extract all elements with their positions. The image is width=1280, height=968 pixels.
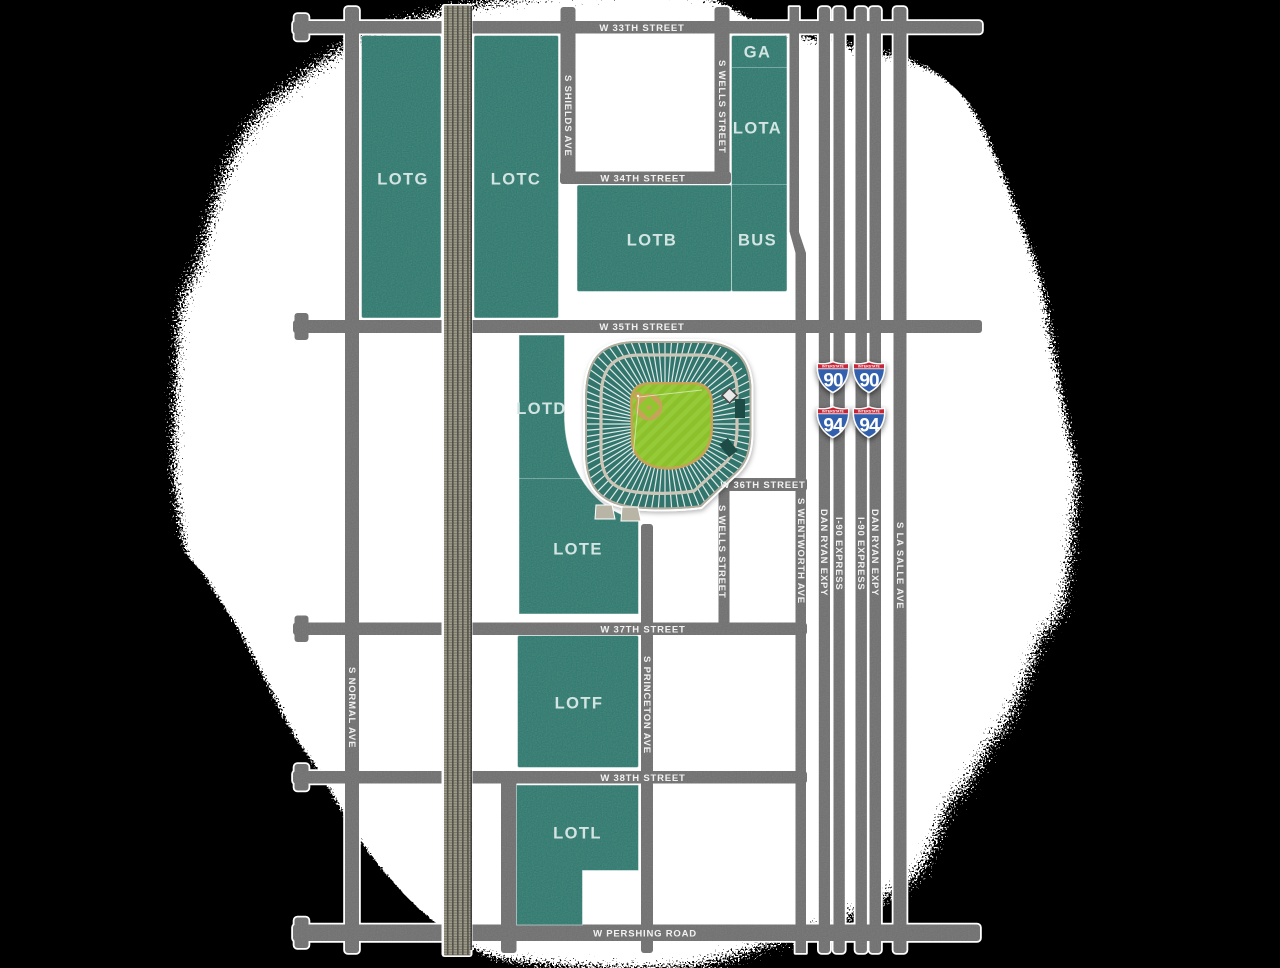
svg-text:LOTF: LOTF: [555, 694, 604, 712]
svg-text:W 33TH STREET: W 33TH STREET: [599, 23, 684, 34]
svg-text:LOTD: LOTD: [516, 400, 567, 418]
svg-text:S SHIELDS AVE: S SHIELDS AVE: [562, 75, 573, 157]
svg-text:S LA SALLE AVE: S LA SALLE AVE: [894, 522, 905, 609]
svg-text:90: 90: [823, 371, 843, 392]
svg-text:LOTE: LOTE: [553, 540, 603, 558]
svg-text:S NORMAL AVE: S NORMAL AVE: [346, 667, 357, 748]
svg-text:94: 94: [859, 416, 880, 437]
svg-text:S PRINCETON AVE: S PRINCETON AVE: [641, 656, 652, 754]
svg-text:LOTA: LOTA: [733, 119, 782, 137]
svg-text:S WELLS STREET: S WELLS STREET: [716, 505, 727, 599]
svg-text:DAN RYAN EXPY: DAN RYAN EXPY: [818, 509, 829, 596]
svg-text:LOTB: LOTB: [627, 231, 678, 249]
svg-text:BUS: BUS: [738, 231, 777, 249]
svg-text:W 37TH STREET: W 37TH STREET: [600, 624, 685, 635]
svg-text:S WENTWORTH AVE: S WENTWORTH AVE: [795, 498, 806, 604]
svg-text:S WELLS STREET: S WELLS STREET: [716, 60, 727, 154]
svg-text:W PERSHING ROAD: W PERSHING ROAD: [593, 929, 697, 940]
svg-text:LOTC: LOTC: [491, 170, 542, 188]
svg-text:I-90 EXPRESS: I-90 EXPRESS: [833, 517, 844, 591]
svg-text:GA: GA: [744, 43, 772, 61]
svg-text:LOTG: LOTG: [377, 170, 428, 188]
svg-text:W 35TH STREET: W 35TH STREET: [599, 322, 684, 333]
svg-text:94: 94: [823, 416, 844, 437]
svg-text:I-90 EXPRESS: I-90 EXPRESS: [855, 517, 866, 591]
svg-text:LOTL: LOTL: [553, 824, 602, 842]
svg-text:90: 90: [859, 371, 879, 392]
svg-text:W 38TH STREET: W 38TH STREET: [600, 773, 685, 784]
svg-text:W 36TH STREET: W 36TH STREET: [720, 480, 805, 491]
svg-text:W 34TH STREET: W 34TH STREET: [600, 173, 685, 184]
svg-text:DAN RYAN EXPY: DAN RYAN EXPY: [869, 509, 880, 596]
